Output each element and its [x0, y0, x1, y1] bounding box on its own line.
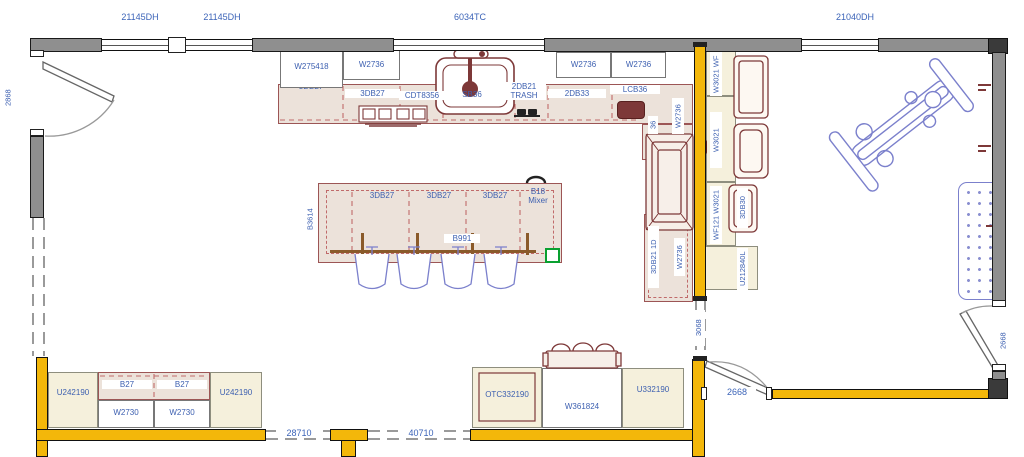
wall-cabinet-label: W275418 — [282, 62, 341, 71]
window-dimension-label: 6034TC — [430, 12, 510, 22]
door-jamb — [992, 364, 1006, 371]
wall-segment[interactable] — [992, 52, 1006, 302]
mixer-cabinet-label: B18 Mixer — [521, 187, 555, 205]
island-cabinet-label: 3DB27 — [470, 191, 520, 200]
wall-cabinet-label: W2736 — [345, 60, 398, 69]
wall-cabinet-label-vertical: W2736 — [672, 98, 684, 134]
door-jamb — [30, 50, 44, 57]
wall-segment[interactable] — [992, 371, 1006, 380]
door-dimension-label: 2668 — [718, 387, 756, 397]
appliance-front-icons[interactable] — [729, 56, 768, 232]
base-cabinet-label: B27 — [157, 380, 207, 389]
base-cabinet-label-vertical: 3DB21 1D — [648, 226, 659, 288]
wall-end-cap — [693, 296, 707, 301]
wall-segment[interactable] — [878, 38, 990, 52]
grill-appliance-icon[interactable] — [543, 343, 621, 368]
window-21040dh[interactable] — [802, 39, 878, 51]
half-wall-yellow[interactable] — [341, 440, 356, 457]
window-dimension-label: 21145DH — [182, 12, 262, 22]
stool-icons[interactable] — [355, 247, 518, 289]
half-wall-yellow[interactable] — [36, 357, 48, 457]
door-dimension-label: 2668 — [997, 324, 1009, 358]
base-cabinet-label: 2DB33 — [548, 89, 606, 98]
tall-cabinet-label: U242190 — [49, 388, 97, 397]
cabinet-label-vertical: U212840L — [737, 248, 748, 290]
wall-cabinet-label: W361824 — [550, 402, 614, 411]
window-dimension-label: 21040DH — [815, 12, 895, 22]
tall-cabinet-label: U332190 — [626, 385, 680, 394]
corner-cabinet-label: LCB36 — [610, 85, 660, 94]
window-dimension-label: 21145DH — [100, 12, 180, 22]
door-jamb — [30, 129, 44, 136]
half-wall-yellow[interactable] — [470, 429, 693, 441]
opening-dimension-label: 40710 — [398, 428, 444, 438]
half-wall-yellow[interactable] — [36, 429, 266, 441]
wall-end-cap — [693, 356, 707, 361]
door-jamb — [766, 387, 772, 400]
tall-cabinet-label: U242190 — [212, 388, 260, 397]
door-dimension-label: 2868 — [2, 80, 14, 116]
wall-end-cap — [693, 42, 707, 47]
sink-cabinet-label: SB36 — [447, 90, 497, 99]
trash-icon — [514, 109, 540, 117]
wall-corner — [988, 378, 1008, 399]
exercise-machine-icon[interactable] — [827, 53, 978, 193]
wall-segment[interactable] — [30, 136, 44, 218]
window-21145dh[interactable] — [102, 39, 168, 51]
cabinet-label-vertical: 3DB30 — [737, 188, 748, 228]
cooktop-icon[interactable] — [359, 106, 427, 126]
wall-cabinet-label-vertical: W2736 — [674, 238, 685, 276]
island-cabinet-label: 3DB27 — [413, 191, 465, 200]
partition-wall-yellow[interactable] — [694, 46, 706, 298]
door-swing-right[interactable] — [960, 306, 999, 370]
green-outlet-marker[interactable] — [545, 248, 560, 263]
cabinet-label-vertical: W3021 — [710, 112, 722, 168]
wall-cabinet-label: W2730 — [100, 408, 152, 417]
door-jamb — [701, 387, 707, 400]
half-wall-yellow[interactable] — [772, 389, 990, 399]
filler-label-vertical: 36 — [648, 116, 658, 134]
window-21145dh[interactable] — [186, 39, 252, 51]
window-post — [168, 37, 186, 53]
island-side-label-vertical: B3614 — [304, 200, 316, 238]
wall-cabinet-label: W2736 — [613, 60, 664, 69]
cabinet-label-vertical: WF121 W3021 — [710, 186, 722, 244]
island-bar-rail — [330, 233, 536, 255]
cooktop-cabinet-label: CDT8356 — [399, 91, 445, 100]
island-cabinet-label: 3DB27 — [356, 191, 408, 200]
opening-dimension-label: 3068 — [692, 310, 705, 346]
door-swing-left[interactable] — [43, 62, 114, 136]
trash-cabinet-label: 2DB21 TRASH — [502, 82, 546, 100]
opening-dimension-label: 28710 — [276, 428, 322, 438]
wall-segment[interactable] — [544, 38, 802, 52]
base-cabinet-label: 3DB27 — [345, 89, 400, 98]
corner-range-icon[interactable] — [646, 134, 693, 230]
door-jamb — [992, 300, 1006, 307]
mixer-handle-icon — [527, 177, 545, 183]
wall-cabinet-label: W2730 — [156, 408, 208, 417]
half-wall-yellow[interactable] — [692, 359, 705, 457]
oven-cabinet-label: OTC332190 — [474, 390, 540, 399]
base-cabinet-label: B27 — [102, 380, 152, 389]
floor-plan-canvas[interactable]: 3DB27 W275418 W2736 W2736 W2736 3DB27 CD… — [0, 0, 1024, 457]
wall-cabinet-label: W2736 — [558, 60, 609, 69]
island-front-label: B991 — [444, 234, 480, 243]
window-6034tc[interactable] — [394, 39, 544, 51]
wall-segment[interactable] — [252, 38, 394, 52]
cabinet-label-vertical: W3021 WF — [710, 52, 722, 96]
